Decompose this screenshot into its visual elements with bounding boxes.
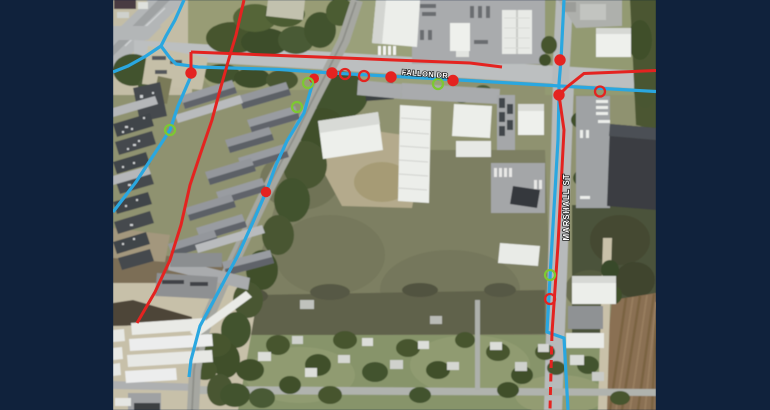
svg-text:MARSHALL ST: MARSHALL ST xyxy=(562,173,571,240)
